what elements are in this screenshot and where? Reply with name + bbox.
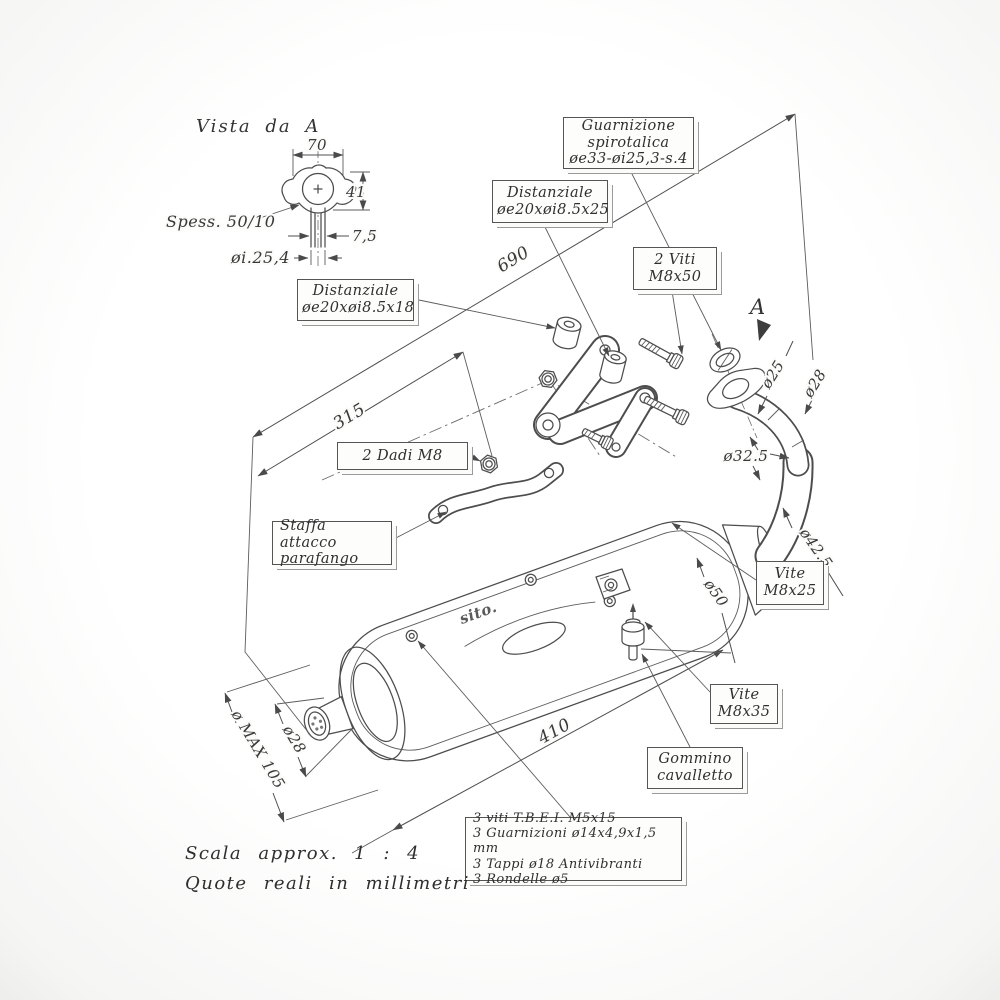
- callout-distanziale-25: Distanziale øe20xøi8.5x25: [492, 180, 608, 223]
- detail-inner-diameter-label: øi.25,4: [230, 248, 290, 267]
- dim-max-diameter: ø MAX 105: [227, 706, 289, 792]
- callout-line: M8x35: [715, 704, 773, 721]
- callout-parts-list: 3 viti T.B.E.I. M5x15 3 Guarnizioni ø14x…: [465, 817, 682, 881]
- nut-m8: [478, 454, 500, 475]
- callout-guarnizione-spirotalica: Guarnizione spirotalica øe33-øi25,3-s.4: [563, 117, 694, 169]
- parts-list-item: 3 viti T.B.E.I. M5x15: [473, 811, 677, 826]
- callout-gommino-cavalletto: Gommino cavalletto: [647, 747, 743, 789]
- callout-line: Vite: [715, 687, 773, 704]
- detail-dim-offset: 7,5: [352, 227, 377, 245]
- detail-dim-height: 41: [345, 183, 366, 201]
- callout-line: øe20xøi8.5x18: [302, 300, 409, 317]
- bracket-boss: [536, 413, 560, 437]
- callout-line: spirotalica: [568, 135, 689, 152]
- dim-mid-pipe-diameter: ø32.5: [723, 447, 769, 465]
- callout-line: Guarnizione: [568, 118, 689, 135]
- detail-view-vista-da-a: Vista da A 70 41 7,5 Spess. 50/10 øi.25,…: [166, 116, 377, 268]
- dim-body-length: 410: [534, 715, 574, 749]
- callout-viti-m8x50: 2 Viti M8x50: [633, 247, 717, 290]
- callout-line: Vite: [761, 566, 819, 583]
- scale-note: Scala approx. 1 : 4: [185, 843, 420, 864]
- detail-view-title: Vista da A: [196, 116, 320, 137]
- units-note: Quote reali in millimetri: [185, 873, 470, 894]
- technical-drawing-page: sito.: [0, 0, 1000, 1000]
- parts-list-item: 3 Rondelle ø5: [473, 872, 677, 887]
- callout-staffa-parafango: Staffa attacco parafango: [272, 521, 392, 565]
- view-arrow-icon: [757, 319, 771, 341]
- callout-line: Distanziale: [497, 185, 603, 202]
- callout-line: cavalletto: [652, 768, 738, 785]
- callout-line: Distanziale: [302, 283, 409, 300]
- dim-overall-length: 690: [494, 242, 533, 277]
- spacer-18: [552, 315, 583, 351]
- callout-vite-m8x25: Vite M8x25: [756, 561, 824, 605]
- dim-header-outer-diameter: ø28: [799, 366, 830, 402]
- view-direction-marker: A: [748, 295, 771, 341]
- callout-line: 2 Viti: [638, 252, 712, 269]
- callout-line: M8x50: [638, 269, 712, 286]
- callout-dadi-m8: 2 Dadi M8: [337, 442, 468, 470]
- nut-m8: [538, 370, 558, 388]
- callout-vite-m8x35: Vite M8x35: [710, 684, 778, 724]
- callout-line: 2 Dadi M8: [342, 448, 463, 465]
- callout-line: Staffa attacco: [280, 518, 387, 552]
- parts-list-item: 3 Tappi ø18 Antivibranti: [473, 857, 677, 872]
- detail-thickness-label: Spess. 50/10: [166, 212, 275, 231]
- parts-list-item: 3 Guarnizioni ø14x4,9x1,5 mm: [473, 826, 677, 856]
- callout-line: øe33-øi25,3-s.4: [568, 151, 689, 168]
- view-arrow-label: A: [748, 295, 765, 319]
- callout-line: parafango: [280, 551, 387, 568]
- fender-bracket: [436, 468, 556, 516]
- detail-dim-width: 70: [307, 136, 327, 154]
- callout-line: M8x25: [761, 583, 819, 600]
- callout-line: Gommino: [652, 751, 738, 768]
- callout-distanziale-18: Distanziale øe20xøi8.5x18: [297, 279, 414, 321]
- bolt-m8x50: [637, 335, 684, 370]
- callout-line: øe20xøi8.5x25: [497, 202, 603, 219]
